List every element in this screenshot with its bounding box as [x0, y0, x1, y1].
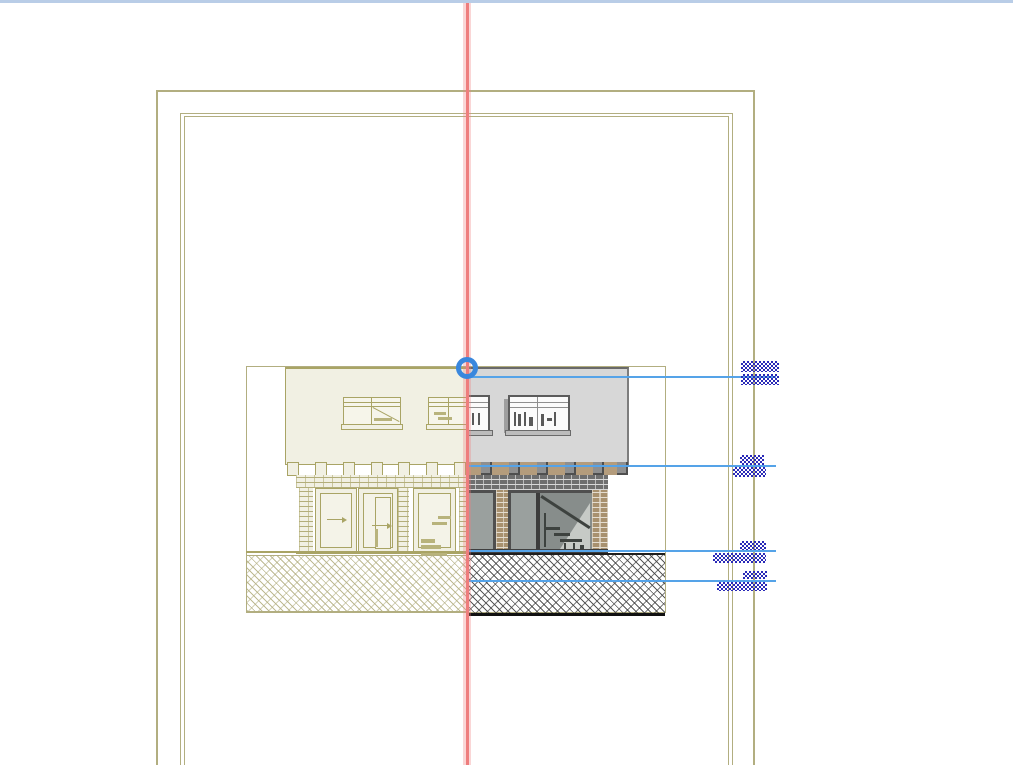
stair-step — [546, 527, 560, 530]
window-top-strip — [0, 0, 1013, 3]
active-brick-pier — [496, 490, 508, 553]
active-corbel — [565, 462, 576, 475]
window-reflection-mark — [524, 412, 526, 426]
reference-window-upper-1[interactable] — [343, 397, 401, 426]
reference-window-stair[interactable] — [413, 488, 456, 552]
active-corbel — [593, 462, 604, 475]
window-reflection-mark — [529, 417, 533, 426]
active-corbel — [481, 462, 492, 475]
stair-step — [421, 545, 441, 549]
stair-step — [438, 516, 451, 519]
interior-view — [540, 493, 592, 550]
drawing-canvas[interactable] — [0, 0, 1013, 765]
stair-post — [544, 513, 546, 547]
active-corbel — [617, 462, 628, 475]
reference-door[interactable] — [358, 488, 398, 552]
glazing-frame — [493, 493, 496, 553]
window-mullion — [371, 398, 372, 425]
reference-brick-pier — [398, 488, 409, 552]
window-transom-line — [469, 402, 488, 403]
level-eaves-label-bottom-greeked[interactable] — [733, 467, 766, 477]
reference-corbel — [371, 462, 383, 476]
reference-corbel — [426, 462, 438, 476]
stair-step — [554, 533, 570, 536]
level-ground-floor-line[interactable] — [467, 550, 776, 552]
reference-corbel — [315, 462, 327, 476]
opening-direction-arrow — [327, 519, 343, 520]
reference-corbel — [343, 462, 355, 476]
window-stair-mark — [434, 412, 446, 415]
reference-corbel — [398, 462, 410, 476]
window-stair-mark — [438, 417, 452, 420]
window-frame-inner — [320, 493, 352, 548]
active-ground-hatch[interactable] — [467, 553, 665, 616]
reference-window-door-1[interactable] — [315, 488, 357, 552]
reference-corbel — [287, 462, 299, 476]
active-corbel — [537, 462, 548, 475]
reference-lower-wall[interactable] — [296, 475, 467, 554]
glazing-frame — [508, 493, 511, 553]
level-roof-line[interactable] — [467, 376, 776, 378]
stair-step — [432, 522, 447, 525]
active-corbel — [509, 462, 520, 475]
level-ground-floor-label-bottom-greeked[interactable] — [713, 553, 766, 563]
level-roof-label-bottom-greeked[interactable] — [741, 374, 779, 385]
active-lintel-band — [467, 475, 608, 490]
level-foundation-label-top-greeked[interactable] — [743, 571, 767, 579]
opening-direction-arrow — [372, 525, 388, 526]
window-reflection-mark — [554, 412, 556, 426]
reference-window-sill-1 — [341, 424, 403, 430]
trace-splitter-handle[interactable] — [456, 357, 478, 379]
reference-lintel-band — [296, 475, 467, 488]
active-window-upper-2[interactable] — [508, 395, 570, 434]
reference-ground-line — [246, 551, 467, 553]
window-reflection-mark — [541, 414, 544, 426]
window-reflection-mark — [518, 414, 521, 426]
active-window-sill-2 — [505, 430, 571, 436]
window-reflection-mark — [514, 412, 516, 426]
level-eaves-line[interactable] — [467, 465, 776, 467]
stair-step — [421, 539, 435, 543]
active-brick-pier-right — [600, 490, 608, 553]
window-reflection-mark — [547, 418, 552, 421]
level-ground-floor-label-top-greeked[interactable] — [740, 541, 766, 550]
window-reflection-mark — [478, 413, 480, 425]
door-jamb-mark — [375, 529, 378, 547]
level-roof-label-top-greeked[interactable] — [741, 361, 779, 372]
window-mullion — [448, 398, 449, 425]
active-post — [592, 490, 600, 553]
reference-ground-hatch[interactable] — [246, 555, 468, 612]
level-eaves-label-top-greeked[interactable] — [740, 455, 764, 465]
window-transom-line — [469, 407, 488, 408]
trace-splitter-line[interactable] — [466, 3, 469, 765]
window-reflection-mark — [472, 413, 474, 425]
window-transom-line — [510, 402, 568, 403]
window-transom-line — [510, 407, 568, 408]
stair-step — [560, 539, 582, 542]
window-mullion — [537, 397, 538, 432]
active-lower-wall[interactable] — [467, 475, 608, 553]
reference-brick-pier — [299, 488, 313, 552]
window-stair-mark — [374, 418, 392, 421]
window-transom-line — [344, 402, 400, 403]
level-foundation-label-bottom-greeked[interactable] — [717, 582, 767, 591]
